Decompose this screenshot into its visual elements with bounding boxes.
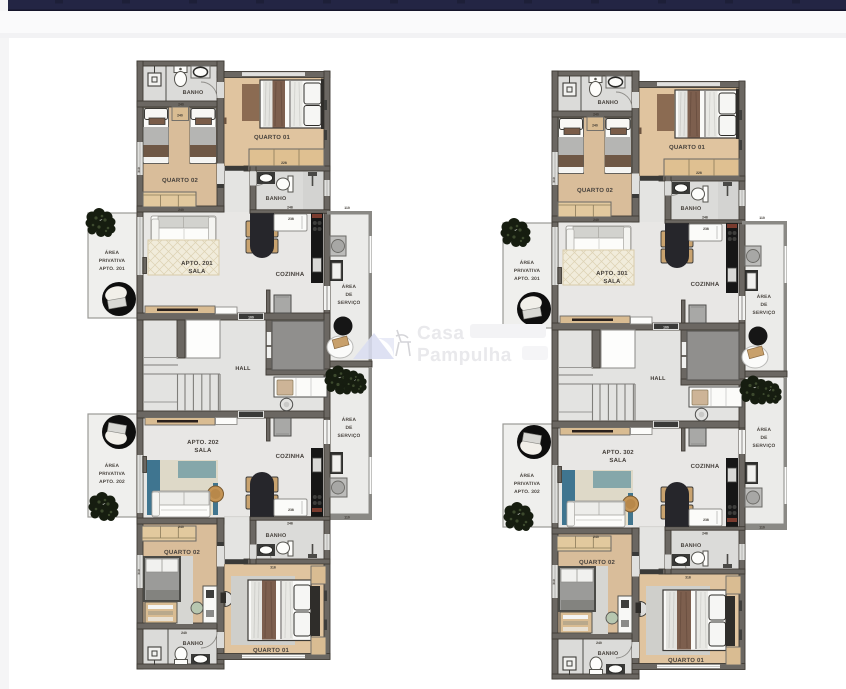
svg-text:BANHO: BANHO <box>266 196 287 202</box>
svg-text:COZINHA: COZINHA <box>276 271 305 278</box>
svg-text:SERVIÇO: SERVIÇO <box>338 433 361 439</box>
svg-text:SERVIÇO: SERVIÇO <box>753 443 776 449</box>
svg-text:APTO. 301: APTO. 301 <box>596 270 628 277</box>
svg-text:318: 318 <box>270 566 276 570</box>
svg-text:QUARTO 01: QUARTO 01 <box>668 657 704 664</box>
svg-text:238: 238 <box>703 518 709 522</box>
svg-text:240: 240 <box>181 631 187 635</box>
svg-text:SERVIÇO: SERVIÇO <box>753 310 776 316</box>
svg-text:APTO. 302: APTO. 302 <box>514 489 540 495</box>
svg-text:PRIVATIVA: PRIVATIVA <box>99 471 126 477</box>
svg-text:DE: DE <box>345 425 353 431</box>
svg-text:240: 240 <box>593 218 599 222</box>
svg-text:100: 100 <box>248 316 254 320</box>
svg-text:APTO. 202: APTO. 202 <box>99 479 125 485</box>
svg-text:BANHO: BANHO <box>598 100 619 106</box>
svg-text:BANHO: BANHO <box>681 543 702 549</box>
svg-text:APTO. 201: APTO. 201 <box>181 260 213 267</box>
svg-text:DE: DE <box>760 302 768 308</box>
svg-text:248: 248 <box>287 206 293 210</box>
svg-text:248: 248 <box>702 216 708 220</box>
svg-text:DE: DE <box>760 435 768 441</box>
svg-text:DE: DE <box>345 292 353 298</box>
svg-text:110: 110 <box>759 526 765 530</box>
svg-text:QUARTO 01: QUARTO 01 <box>254 134 290 141</box>
svg-text:QUARTO 01: QUARTO 01 <box>253 647 289 654</box>
svg-text:240: 240 <box>593 535 599 539</box>
svg-text:310: 310 <box>137 569 141 575</box>
svg-text:COZINHA: COZINHA <box>691 281 720 288</box>
svg-text:240: 240 <box>177 114 183 118</box>
svg-text:240: 240 <box>592 124 598 128</box>
svg-text:248: 248 <box>702 532 708 536</box>
svg-text:PRIVATIVA: PRIVATIVA <box>99 258 126 264</box>
svg-text:SALA: SALA <box>188 268 206 275</box>
svg-text:240: 240 <box>596 641 602 645</box>
svg-text:SALA: SALA <box>609 457 627 464</box>
svg-text:QUARTO 01: QUARTO 01 <box>669 144 705 151</box>
svg-text:ÁREA: ÁREA <box>342 283 357 290</box>
svg-text:ÁREA: ÁREA <box>520 472 535 479</box>
svg-text:BANHO: BANHO <box>266 533 287 539</box>
svg-text:SALA: SALA <box>194 447 212 454</box>
svg-text:HALL: HALL <box>650 376 666 382</box>
svg-text:240: 240 <box>178 103 184 107</box>
svg-text:Casa: Casa <box>417 323 464 344</box>
svg-text:QUARTO 02: QUARTO 02 <box>577 187 613 194</box>
svg-text:BANHO: BANHO <box>183 90 204 96</box>
svg-text:HALL: HALL <box>235 366 251 372</box>
svg-text:PRIVATIVA: PRIVATIVA <box>514 268 541 274</box>
svg-text:APTO. 301: APTO. 301 <box>514 276 540 282</box>
svg-text:ÁREA: ÁREA <box>342 416 357 423</box>
svg-text:APTO. 302: APTO. 302 <box>602 449 634 456</box>
svg-text:310: 310 <box>137 167 141 173</box>
svg-text:APTO. 201: APTO. 201 <box>99 266 125 272</box>
svg-text:240: 240 <box>178 208 184 212</box>
svg-text:228: 228 <box>696 171 702 175</box>
svg-text:ÁREA: ÁREA <box>757 426 772 433</box>
svg-text:BANHO: BANHO <box>681 206 702 212</box>
svg-text:QUARTO 02: QUARTO 02 <box>164 549 200 556</box>
svg-text:COZINHA: COZINHA <box>276 453 305 460</box>
svg-text:110: 110 <box>759 216 765 220</box>
svg-text:318: 318 <box>685 576 691 580</box>
svg-text:240: 240 <box>593 113 599 117</box>
svg-text:ÁREA: ÁREA <box>520 259 535 266</box>
svg-text:238: 238 <box>288 217 294 221</box>
svg-text:110: 110 <box>344 206 350 210</box>
svg-text:ÁREA: ÁREA <box>757 293 772 300</box>
svg-text:238: 238 <box>703 227 709 231</box>
svg-text:310: 310 <box>552 177 556 183</box>
svg-text:ÁREA: ÁREA <box>105 249 120 256</box>
svg-text:Pampulha: Pampulha <box>417 345 512 366</box>
svg-text:QUARTO 02: QUARTO 02 <box>579 559 615 566</box>
svg-text:QUARTO 02: QUARTO 02 <box>162 177 198 184</box>
svg-text:100: 100 <box>663 326 669 330</box>
svg-text:248: 248 <box>287 522 293 526</box>
svg-text:238: 238 <box>288 508 294 512</box>
svg-text:APTO. 202: APTO. 202 <box>187 439 219 446</box>
svg-text:SERVIÇO: SERVIÇO <box>338 300 361 306</box>
svg-text:110: 110 <box>344 516 350 520</box>
svg-text:PRIVATIVA: PRIVATIVA <box>514 481 541 487</box>
svg-text:ÁREA: ÁREA <box>105 462 120 469</box>
svg-text:240: 240 <box>178 525 184 529</box>
svg-text:BANHO: BANHO <box>598 651 619 657</box>
svg-text:COZINHA: COZINHA <box>691 463 720 470</box>
svg-text:228: 228 <box>281 161 287 165</box>
svg-text:SALA: SALA <box>603 278 621 285</box>
svg-text:BANHO: BANHO <box>183 641 204 647</box>
svg-text:310: 310 <box>552 579 556 585</box>
